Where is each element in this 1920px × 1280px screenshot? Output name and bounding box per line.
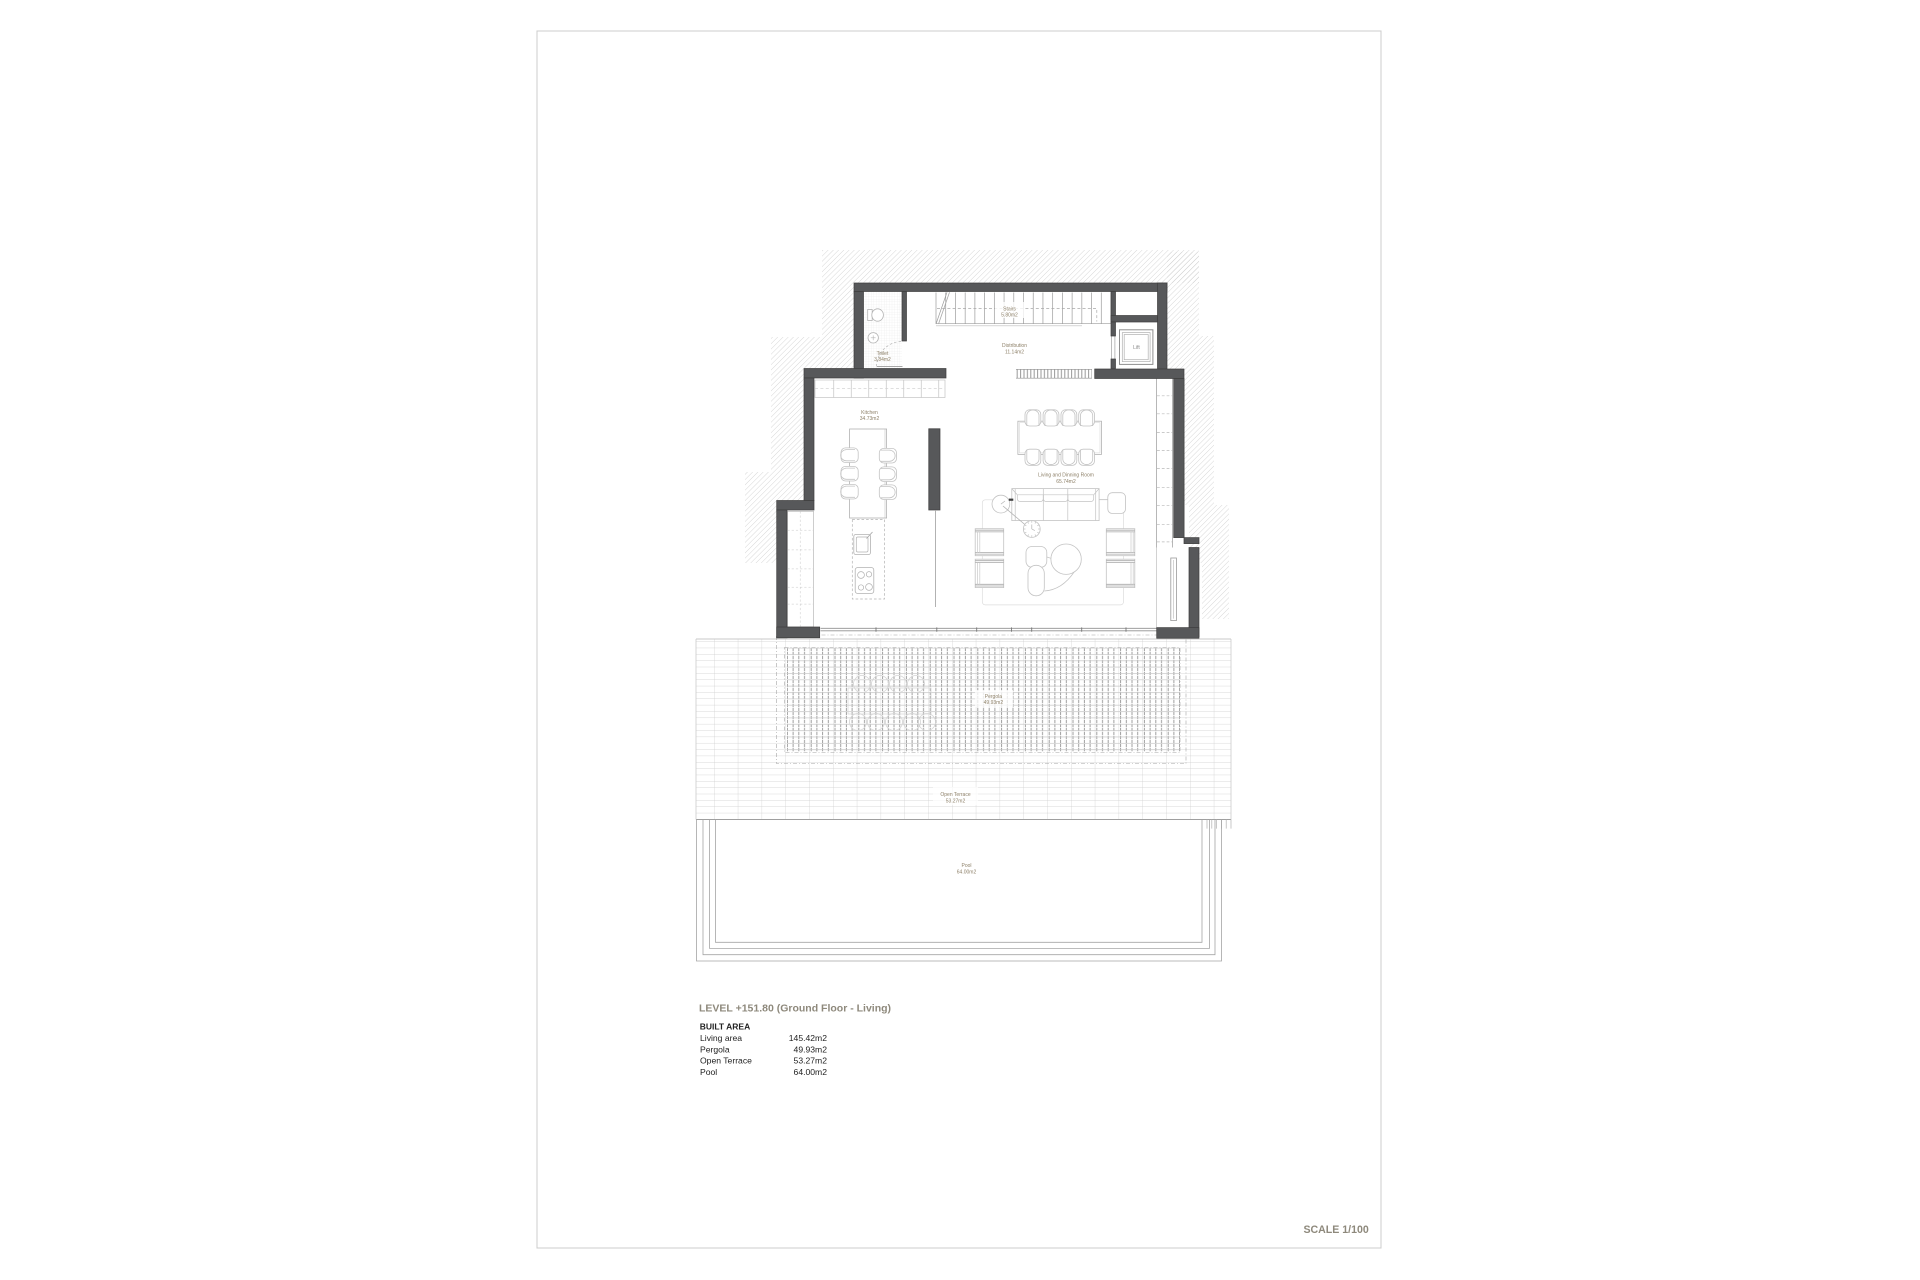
svg-text:53.27m2: 53.27m2 — [946, 799, 966, 805]
svg-text:Distribution: Distribution — [1002, 343, 1027, 349]
svg-text:49.93m2: 49.93m2 — [984, 700, 1004, 706]
svg-text:64.00m2: 64.00m2 — [794, 1067, 828, 1077]
svg-text:Living area: Living area — [700, 1033, 742, 1043]
svg-text:53.27m2: 53.27m2 — [794, 1056, 828, 1066]
svg-text:3,84m2: 3,84m2 — [874, 357, 891, 363]
svg-text:64.00m2: 64.00m2 — [957, 869, 977, 875]
svg-text:BUILT AREA: BUILT AREA — [700, 1022, 751, 1032]
svg-text:49.93m2: 49.93m2 — [794, 1044, 828, 1054]
svg-text:145.42m2: 145.42m2 — [789, 1033, 827, 1043]
svg-text:Lift: Lift — [1133, 345, 1140, 351]
svg-text:Pool: Pool — [700, 1067, 717, 1077]
svg-text:SCALE 1/100: SCALE 1/100 — [1303, 1224, 1368, 1236]
svg-text:Pergola: Pergola — [985, 694, 1002, 700]
svg-text:11.14m2: 11.14m2 — [1005, 350, 1024, 356]
svg-text:65.74m2: 65.74m2 — [1056, 479, 1076, 485]
svg-text:Open Terrace: Open Terrace — [700, 1056, 752, 1066]
svg-text:LEVEL +151.80 (Ground Floor -: LEVEL +151.80 (Ground Floor - Living) — [699, 1002, 891, 1014]
svg-text:34.73m2: 34.73m2 — [860, 416, 880, 422]
svg-text:Pergola: Pergola — [700, 1044, 730, 1054]
svg-text:Pool: Pool — [961, 863, 971, 869]
svg-text:Open Terrace: Open Terrace — [940, 792, 970, 798]
svg-text:Living and Dinning Room: Living and Dinning Room — [1038, 472, 1094, 478]
svg-text:5.80m2: 5.80m2 — [1001, 313, 1018, 319]
